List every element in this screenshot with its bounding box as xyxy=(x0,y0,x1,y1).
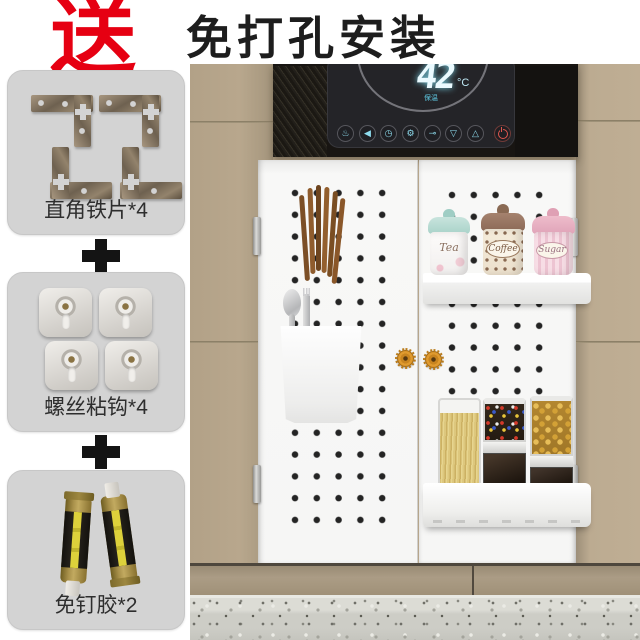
chopstick xyxy=(316,185,321,271)
glue-tube-icon xyxy=(100,494,138,583)
bundle-item-label: 直角铁片*4 xyxy=(8,194,184,224)
plus-icon xyxy=(82,435,120,469)
corner-bracket-icon xyxy=(50,147,112,199)
product-banner: 送 免打孔安装 直角铁片*4 螺丝粘钩*4 免钉胶*2 xyxy=(0,0,640,640)
spice-shelf xyxy=(423,273,591,304)
appliance: 42 °C 保温 ♨ ◀ ◷ ⚙ ⊸ ▽ △ xyxy=(273,64,578,157)
hinge xyxy=(253,465,261,503)
cabinet-seam xyxy=(576,120,640,122)
adhesive-hook-icon xyxy=(99,288,152,337)
granite-countertop xyxy=(190,595,640,640)
corner-bracket-icon xyxy=(120,147,182,199)
speaker-icon: ◀ xyxy=(359,125,376,142)
adhesive-hook-icon xyxy=(105,341,158,390)
glue-tube-icon xyxy=(60,496,92,584)
bundle-box-hooks: 螺丝粘钩*4 xyxy=(7,272,185,432)
jar-label: Tea xyxy=(427,241,471,254)
plus-icon xyxy=(82,239,120,273)
cabinet-seam xyxy=(576,341,640,343)
bundle-box-brackets: 直角铁片*4 xyxy=(7,70,185,235)
drawer-front xyxy=(190,563,640,595)
door-knob xyxy=(425,351,442,368)
adhesive-hook-icon xyxy=(39,288,92,337)
appliance-control-panel: 42 °C 保温 ♨ ◀ ◷ ⚙ ⊸ ▽ △ xyxy=(327,64,515,148)
corner-bracket-icon xyxy=(99,95,161,147)
temperature-unit: °C xyxy=(457,77,469,89)
corner-bracket-icon xyxy=(31,95,93,147)
arrow-up-icon: △ xyxy=(467,125,484,142)
arrow-down-icon: ▽ xyxy=(445,125,462,142)
fork xyxy=(303,294,310,330)
bundle-item-label: 免钉胶*2 xyxy=(8,589,184,619)
clock-icon: ◷ xyxy=(380,125,397,142)
tea-jar: Tea xyxy=(427,209,471,275)
status-text: 保温 xyxy=(424,92,438,102)
shower-icon: ♨ xyxy=(337,125,354,142)
jar-label: Sugar xyxy=(536,242,568,259)
key-icon: ⊸ xyxy=(424,125,441,142)
bottom-tray xyxy=(423,483,591,527)
door-knob xyxy=(397,350,414,367)
bundle-box-glue: 免钉胶*2 xyxy=(7,470,185,630)
appliance-side xyxy=(515,66,578,157)
coffee-jar: Coffee xyxy=(480,204,526,275)
adhesive-hook-icon xyxy=(45,341,98,390)
jar-label: Coffee xyxy=(486,240,520,258)
page-title: 免打孔安装 xyxy=(186,2,441,68)
kitchen-photo: 42 °C 保温 ♨ ◀ ◷ ⚙ ⊸ ▽ △ xyxy=(190,64,640,640)
appliance-texture xyxy=(273,66,327,157)
bundle-item-label: 螺丝粘钩*4 xyxy=(8,391,184,421)
hinge xyxy=(253,217,261,255)
sugar-jar: Sugar xyxy=(531,208,576,275)
spoon xyxy=(283,289,301,317)
gear-icon: ⚙ xyxy=(402,125,419,142)
power-icon xyxy=(494,125,511,142)
cabinet-seam xyxy=(190,121,273,123)
utensil-cup xyxy=(277,326,365,423)
